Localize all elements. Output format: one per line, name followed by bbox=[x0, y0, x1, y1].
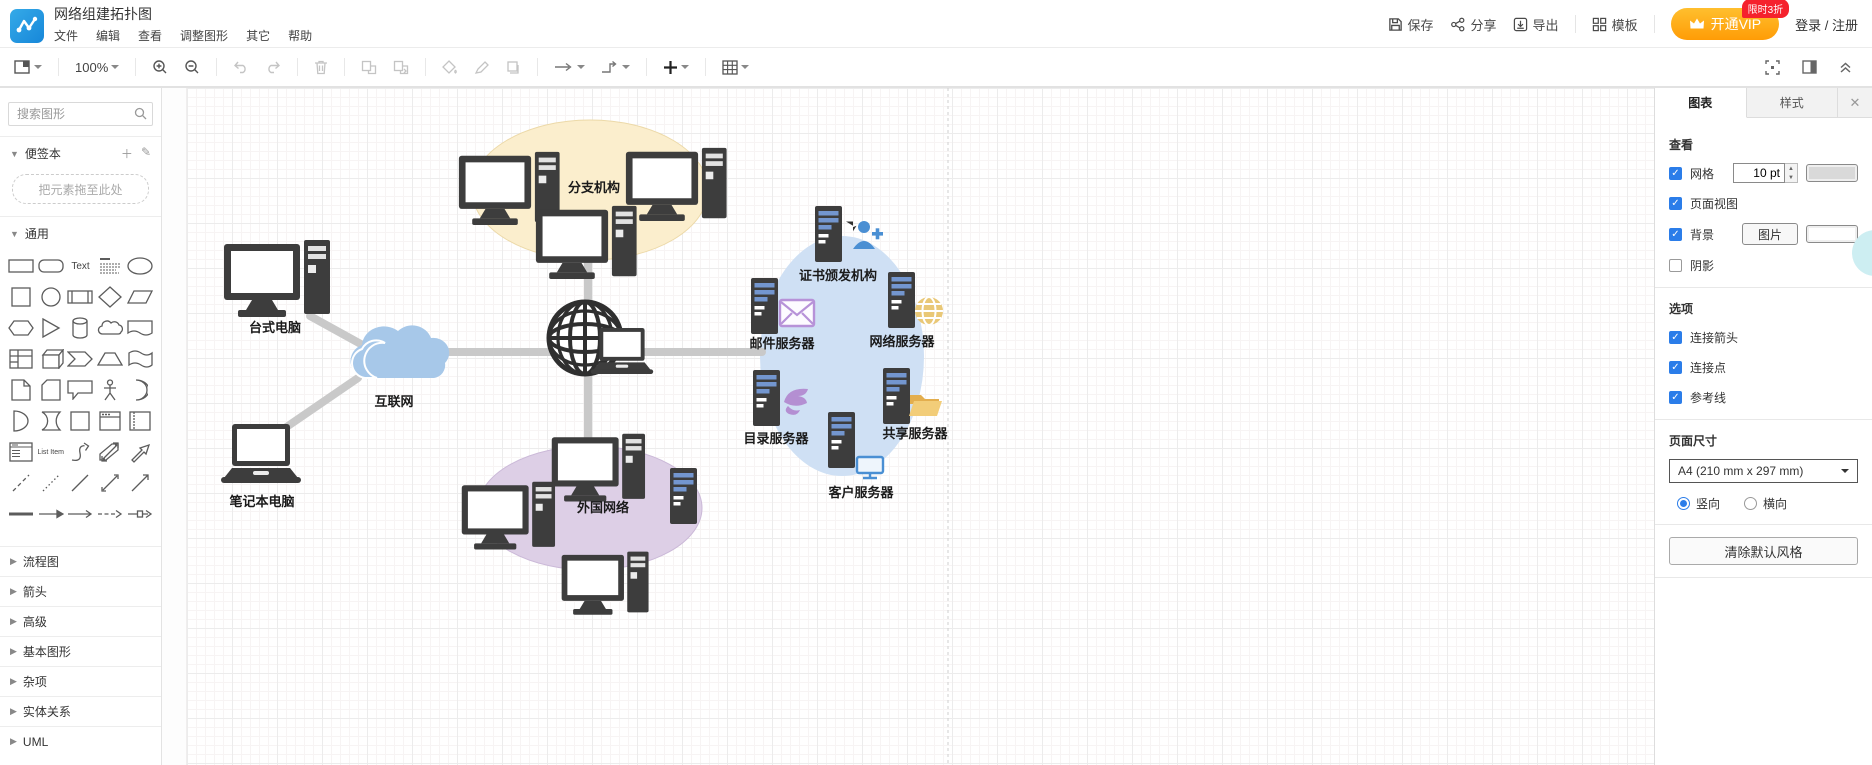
panel-close-icon[interactable]: ✕ bbox=[1838, 88, 1872, 117]
shape-document[interactable] bbox=[125, 316, 155, 340]
tab-style[interactable]: 样式 bbox=[1747, 88, 1839, 117]
undo-button[interactable] bbox=[229, 57, 253, 77]
tab-diagram[interactable]: 图表 bbox=[1655, 88, 1747, 118]
sidebar-section-list: ▶流程图 ▶箭头 ▶高级 ▶基本图形 ▶杂项 ▶实体关系 ▶UML bbox=[0, 546, 161, 756]
shape-arrow[interactable] bbox=[125, 471, 155, 495]
scratchpad-add-icon[interactable]: ＋ bbox=[121, 145, 133, 162]
radio-selected-icon bbox=[1677, 497, 1690, 510]
sidebar-section-misc[interactable]: ▶杂项 bbox=[0, 666, 161, 696]
zoom-out-button[interactable] bbox=[180, 56, 204, 78]
shape-window[interactable] bbox=[95, 409, 125, 433]
insert-button[interactable] bbox=[659, 57, 693, 78]
sidebar-section-er[interactable]: ▶实体关系 bbox=[0, 696, 161, 726]
grid-checkbox[interactable]: ✓ bbox=[1669, 167, 1682, 180]
shape-step[interactable] bbox=[66, 347, 96, 371]
shape-dashed-arrow[interactable] bbox=[95, 502, 125, 526]
template-button[interactable]: 模板 bbox=[1592, 15, 1638, 34]
caret-down-icon bbox=[111, 65, 119, 69]
shape-actor[interactable] bbox=[95, 378, 125, 402]
label-laptop[interactable]: 笔记本电脑 bbox=[229, 494, 294, 509]
shape-square[interactable] bbox=[6, 285, 36, 309]
zoom-level-dropdown[interactable]: 100% bbox=[71, 57, 123, 78]
background-checkbox[interactable]: ✓ bbox=[1669, 228, 1682, 241]
node-laptop[interactable] bbox=[221, 424, 301, 483]
label-foreign-network[interactable]: 外国网络 bbox=[576, 500, 629, 515]
sidebar-section-flowchart[interactable]: ▶流程图 bbox=[0, 546, 161, 576]
label-web-server[interactable]: 网络服务器 bbox=[869, 334, 935, 349]
shape-cylinder[interactable] bbox=[66, 316, 96, 340]
arrow-style-button[interactable] bbox=[550, 59, 589, 75]
shape-flag[interactable] bbox=[125, 347, 155, 371]
shape-curve-arrow[interactable] bbox=[66, 440, 96, 464]
shape-table[interactable] bbox=[6, 347, 36, 371]
shape-square-2[interactable] bbox=[66, 409, 96, 433]
share-icon bbox=[1450, 17, 1466, 32]
scratchpad-drop-zone[interactable]: 把元素拖至此处 bbox=[12, 174, 149, 204]
shape-sidebar-panel[interactable] bbox=[125, 409, 155, 433]
crown-icon bbox=[1689, 17, 1705, 31]
label-shared-server[interactable]: 共享服务器 bbox=[882, 426, 948, 441]
shape-text[interactable]: Text bbox=[66, 254, 96, 278]
collapse-triangle-icon: ▼ bbox=[10, 229, 19, 239]
shape-trapezoid[interactable] bbox=[95, 347, 125, 371]
label-mail-server[interactable]: 邮件服务器 bbox=[749, 336, 815, 351]
background-color-swatch[interactable] bbox=[1806, 225, 1858, 243]
shape-open-arrow[interactable] bbox=[66, 502, 96, 526]
search-input[interactable] bbox=[8, 102, 153, 126]
menu-view[interactable]: 查看 bbox=[138, 27, 162, 44]
menu-help[interactable]: 帮助 bbox=[288, 27, 312, 44]
app-window: 网络组建拓扑图 文件 编辑 查看 调整图形 其它 帮助 保存 分享 导出 bbox=[0, 0, 1872, 765]
shape-parallelogram[interactable] bbox=[125, 285, 155, 309]
grid-size-stepper[interactable]: ▲▼ bbox=[1785, 163, 1798, 183]
login-register-link[interactable]: 登录 / 注册 bbox=[1795, 15, 1858, 34]
export-icon bbox=[1513, 17, 1528, 32]
sidebar-section-advanced[interactable]: ▶高级 bbox=[0, 606, 161, 636]
guides-checkbox[interactable]: ✓ bbox=[1669, 391, 1682, 404]
search-icon bbox=[134, 107, 147, 123]
shape-triangle[interactable] bbox=[36, 316, 66, 340]
menubar: 文件 编辑 查看 调整图形 其它 帮助 bbox=[54, 27, 312, 44]
caret-down-icon bbox=[1841, 469, 1849, 473]
fullscreen-button[interactable] bbox=[1761, 57, 1784, 78]
connection-points-checkbox[interactable]: ✓ bbox=[1669, 361, 1682, 374]
page-view-checkbox[interactable]: ✓ bbox=[1669, 197, 1682, 210]
menu-arrange[interactable]: 调整图形 bbox=[180, 27, 228, 44]
fill-color-button[interactable] bbox=[438, 57, 462, 78]
shape-rectangle[interactable] bbox=[6, 254, 36, 278]
page-size-select[interactable]: A4 (210 mm x 297 mm) bbox=[1669, 459, 1858, 483]
label-certificate-authority[interactable]: 证书颁发机构 bbox=[799, 268, 877, 283]
label-client-server[interactable]: 客户服务器 bbox=[828, 485, 894, 500]
shadow-label: 阴影 bbox=[1690, 257, 1714, 274]
sidebar-section-arrows[interactable]: ▶箭头 bbox=[0, 576, 161, 606]
header: 网络组建拓扑图 文件 编辑 查看 调整图形 其它 帮助 保存 分享 导出 bbox=[0, 0, 1872, 48]
template-icon bbox=[1592, 17, 1607, 32]
node-internet-cloud[interactable] bbox=[351, 325, 450, 378]
page-size-heading: 页面尺寸 bbox=[1669, 432, 1858, 449]
vip-button[interactable]: 开通VIP 限时3折 bbox=[1671, 8, 1780, 40]
shape-sidebar: ▼ 便签本 ＋ ✎ 把元素拖至此处 ▼ 通用 Text bbox=[0, 88, 162, 765]
shape-circle[interactable] bbox=[36, 285, 66, 309]
save-button[interactable]: 保存 bbox=[1388, 15, 1434, 34]
toolbar: 100% bbox=[0, 48, 1872, 88]
table-button[interactable] bbox=[718, 57, 753, 78]
shape-textblock[interactable] bbox=[95, 254, 125, 278]
zoom-in-button[interactable] bbox=[148, 56, 172, 78]
menu-file[interactable]: 文件 bbox=[54, 27, 78, 44]
menu-extras[interactable]: 其它 bbox=[246, 27, 270, 44]
shape-rounded-rectangle[interactable] bbox=[36, 254, 66, 278]
general-section-header[interactable]: ▼ 通用 bbox=[0, 216, 161, 250]
delete-button[interactable] bbox=[310, 57, 332, 78]
label-branch-office[interactable]: 分支机构 bbox=[568, 180, 620, 195]
background-label: 背景 bbox=[1690, 226, 1714, 243]
app-logo-icon[interactable] bbox=[10, 9, 44, 43]
node-desktop-computer[interactable] bbox=[224, 240, 330, 317]
radio-unselected-icon bbox=[1744, 497, 1757, 510]
shape-line[interactable] bbox=[66, 471, 96, 495]
shape-half-circle[interactable] bbox=[6, 409, 36, 433]
shape-cloud[interactable] bbox=[95, 316, 125, 340]
shape-hexagon[interactable] bbox=[6, 316, 36, 340]
document-title[interactable]: 网络组建拓扑图 bbox=[54, 4, 312, 24]
landscape-radio[interactable]: 横向 bbox=[1744, 495, 1787, 512]
connection-arrows-label: 连接箭头 bbox=[1690, 329, 1738, 346]
shape-dotted-line[interactable] bbox=[36, 471, 66, 495]
connection-arrows-checkbox[interactable]: ✓ bbox=[1669, 331, 1682, 344]
shadow-button[interactable] bbox=[502, 57, 525, 78]
shape-concave[interactable] bbox=[36, 409, 66, 433]
portrait-radio[interactable]: 竖向 bbox=[1677, 495, 1720, 512]
page-view-button[interactable] bbox=[10, 57, 46, 78]
format-panel: 图表 样式 ✕ 查看 ✓ 网格 ▲▼ ✓ 页面视图 ✓ 背景 bbox=[1654, 88, 1872, 765]
shadow-checkbox[interactable] bbox=[1669, 259, 1682, 272]
label-directory-server[interactable]: 目录服务器 bbox=[743, 431, 809, 446]
sidebar-section-uml[interactable]: ▶UML bbox=[0, 726, 161, 756]
redo-button[interactable] bbox=[261, 57, 285, 77]
line-color-button[interactable] bbox=[470, 57, 494, 78]
shape-palette: Text bbox=[0, 250, 161, 536]
shape-thick-line[interactable] bbox=[6, 502, 36, 526]
shape-bidirectional-arrow[interactable] bbox=[95, 440, 125, 464]
caret-down-icon bbox=[34, 65, 42, 69]
caret-down-icon bbox=[622, 65, 630, 69]
node-foreign-server[interactable] bbox=[670, 468, 697, 524]
copy-style-button[interactable] bbox=[357, 57, 381, 78]
diagram-canvas[interactable]: 分支机构 台式电脑 互联网 笔记本电脑 外国网络 bbox=[162, 88, 1654, 765]
clear-default-style-button[interactable]: 清除默认风格 bbox=[1669, 537, 1858, 565]
format-panel-tabs: 图表 样式 ✕ bbox=[1655, 88, 1872, 118]
shape-dashed-line[interactable] bbox=[6, 471, 36, 495]
shape-ellipse[interactable] bbox=[125, 254, 155, 278]
connector-style-button[interactable] bbox=[597, 57, 634, 77]
shape-arrow-2[interactable] bbox=[36, 502, 66, 526]
caret-down-icon bbox=[741, 65, 749, 69]
sidebar-section-basic-shapes[interactable]: ▶基本图形 bbox=[0, 636, 161, 666]
node-internet-gateway[interactable] bbox=[549, 302, 653, 374]
paste-style-button[interactable] bbox=[389, 57, 413, 78]
header-divider bbox=[1575, 15, 1576, 33]
grid-size-input[interactable] bbox=[1733, 163, 1785, 183]
shape-crescent[interactable] bbox=[125, 378, 155, 402]
collapse-toolbar-button[interactable] bbox=[1835, 58, 1856, 77]
shape-list[interactable] bbox=[6, 440, 36, 464]
page-view-label: 页面视图 bbox=[1690, 195, 1738, 212]
network-topology-diagram: 分支机构 台式电脑 互联网 笔记本电脑 外国网络 bbox=[162, 88, 1654, 765]
shape-cube[interactable] bbox=[36, 347, 66, 371]
scratchpad-section-header[interactable]: ▼ 便签本 ＋ ✎ bbox=[0, 136, 161, 170]
grid-color-swatch[interactable] bbox=[1806, 164, 1858, 182]
shape-block-arrow[interactable] bbox=[125, 440, 155, 464]
shape-process[interactable] bbox=[66, 285, 96, 309]
vip-discount-badge: 限时3折 bbox=[1742, 0, 1790, 18]
guides-label: 参考线 bbox=[1690, 389, 1726, 406]
header-divider bbox=[1654, 15, 1655, 33]
connection-points-label: 连接点 bbox=[1690, 359, 1726, 376]
shape-note[interactable] bbox=[6, 378, 36, 402]
save-icon bbox=[1388, 17, 1403, 32]
options-heading: 选项 bbox=[1669, 300, 1858, 317]
view-heading: 查看 bbox=[1669, 136, 1858, 153]
caret-down-icon bbox=[681, 65, 689, 69]
export-button[interactable]: 导出 bbox=[1513, 15, 1559, 34]
collapse-triangle-icon: ▼ bbox=[10, 149, 19, 159]
shape-diamond[interactable] bbox=[95, 285, 125, 309]
caret-down-icon bbox=[577, 65, 585, 69]
background-image-button[interactable]: 图片 bbox=[1742, 223, 1798, 245]
label-internet[interactable]: 互联网 bbox=[374, 394, 413, 409]
shape-card[interactable] bbox=[36, 378, 66, 402]
label-desktop-computer[interactable]: 台式电脑 bbox=[249, 320, 301, 335]
shape-callout[interactable] bbox=[66, 378, 96, 402]
grid-label: 网格 bbox=[1690, 165, 1714, 182]
toggle-format-panel-button[interactable] bbox=[1798, 57, 1821, 77]
share-button[interactable]: 分享 bbox=[1450, 15, 1497, 34]
menu-edit[interactable]: 编辑 bbox=[96, 27, 120, 44]
shape-link-arrow[interactable] bbox=[125, 502, 155, 526]
shape-double-arrow[interactable] bbox=[95, 471, 125, 495]
node-foreign-computer-bottom[interactable] bbox=[562, 552, 649, 615]
scratchpad-edit-icon[interactable]: ✎ bbox=[141, 145, 151, 162]
shape-list-item[interactable]: List Item bbox=[36, 440, 66, 464]
